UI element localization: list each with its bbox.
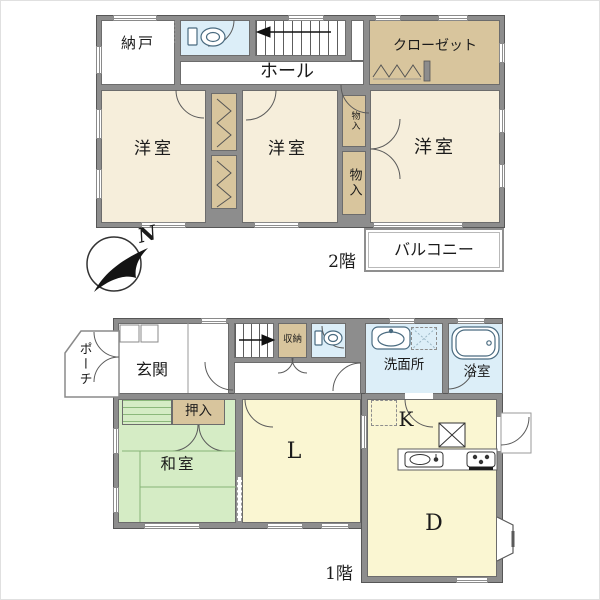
window [254,222,299,228]
window [499,43,505,63]
window [113,15,157,21]
window [267,523,303,529]
room-label-yoshitsu-right: 洋室 [393,134,477,162]
washitsu-board-strip [122,399,172,425]
stairs-2f [255,20,346,56]
window [499,109,505,133]
window [96,109,102,139]
closet-cell-a [211,93,237,151]
corridor-2f [351,20,364,61]
floor1-label: 1階 [315,563,363,585]
room-toilet-2f [180,20,250,56]
window [373,222,463,228]
window [113,487,119,513]
window [499,164,505,188]
window [457,318,485,324]
room-label-mono-large: 物入 [341,155,367,211]
room-label-nando: 納戸 [101,31,175,55]
opening-washitsu-living [237,477,242,521]
room-label-balcony: バルコニー [369,237,499,263]
room-label-genkan: 玄関 [121,357,183,383]
kitchen-door [501,413,531,453]
window [389,318,415,324]
room-label-oshiire: 押入 [173,400,224,424]
floorplan-canvas: 納戸 ホール クローゼット 洋室 洋室 洋室 物入 物入 バルコニー 2階 N … [0,0,600,600]
window [375,15,401,21]
window [144,523,200,529]
room-label-senmenjo: 洗面所 [366,356,442,376]
room-label-mono-small: 物入 [343,99,365,143]
room-label-porch: ポーチ [73,335,95,393]
room-toilet-1f [311,323,346,358]
room-label-dining: D [419,509,449,539]
stairs-1f [234,323,274,358]
window [456,577,488,583]
room-label-closet-2f: クローゼット [379,35,491,57]
opening-kitchen-door [497,417,503,451]
room-label-yokushitsu: 浴室 [451,364,503,382]
hall-1f [234,362,361,394]
opening-senmenjo-kitchen [405,393,433,399]
room-label-yoshitsu-left: 洋室 [117,136,191,162]
compass-north-label: N [131,219,164,249]
window [321,523,349,529]
window [438,15,468,21]
window [288,15,324,21]
opening-living-kitchen [361,415,367,449]
window [201,318,227,324]
room-label-washitsu: 和室 [144,453,212,477]
room-label-living: L [279,437,309,467]
room-label-kitchen: K [393,405,419,433]
room-label-hall: ホール [239,59,335,85]
room-label-yoshitsu-mid: 洋室 [251,136,325,162]
closet-cell-b [211,155,237,209]
floor2-label: 2階 [319,251,365,273]
room-label-shuno: 収納 [278,330,307,350]
washing-machine-area [411,327,437,350]
window [96,169,102,199]
room-yokushitsu [448,323,503,394]
window [113,428,119,454]
